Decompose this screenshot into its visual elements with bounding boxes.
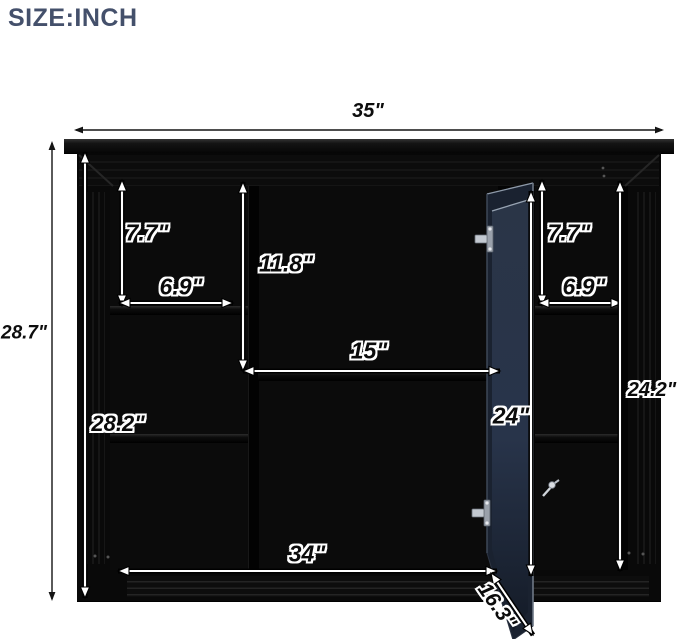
dim-label-right-side-height: 24.2" — [628, 380, 676, 400]
dim-label-left-top-shelf-height: 7.7" — [126, 222, 169, 245]
dim-label-overall-height: 28.7" — [1, 324, 47, 343]
product-dimension-diagram: SIZE:INCH — [0, 0, 679, 639]
dim-label-bottom-width: 34" — [289, 543, 326, 566]
dim-label-door-height: 24" — [493, 405, 530, 428]
dimension-labels: 35"28.7"28.2"7.7"6.9"11.8"15"24"7.7"6.9"… — [0, 0, 679, 639]
dim-label-right-shelf-width: 6.9" — [563, 276, 606, 299]
dim-label-interior-height: 28.2" — [91, 413, 144, 435]
dim-label-right-top-shelf-height: 7.7" — [548, 222, 591, 245]
dim-label-middle-top-height: 11.8" — [259, 253, 313, 276]
dim-label-middle-width: 15" — [351, 340, 388, 363]
dim-label-left-shelf-width: 6.9" — [160, 276, 203, 299]
cabinet-scene: 35"28.7"28.2"7.7"6.9"11.8"15"24"7.7"6.9"… — [0, 0, 679, 639]
dim-label-door-depth: 16.3" — [474, 579, 520, 633]
dim-label-overall-width: 35" — [352, 101, 384, 121]
